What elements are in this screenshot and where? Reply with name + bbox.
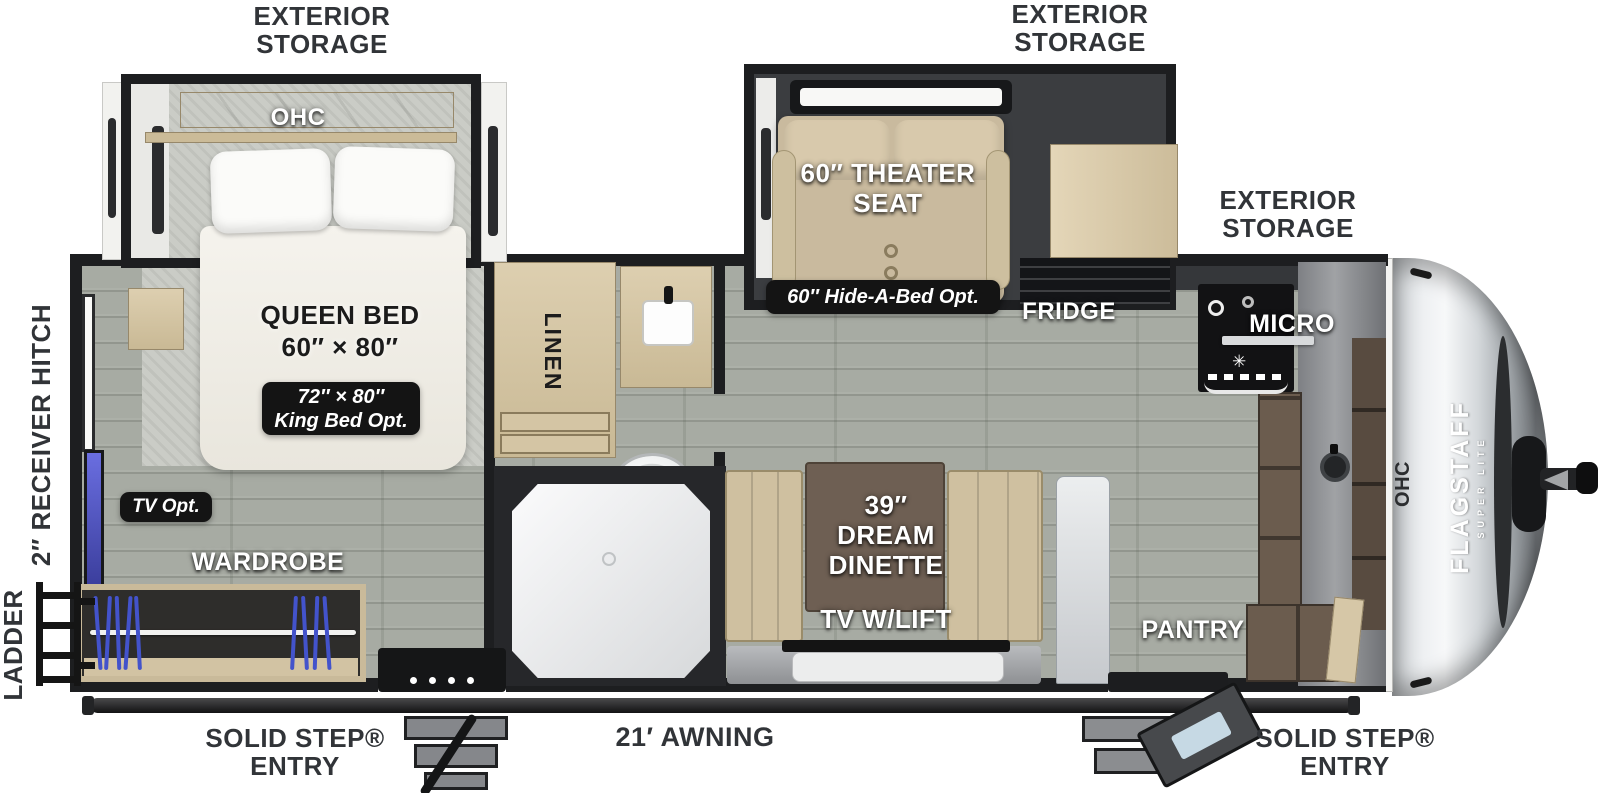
rear-window — [82, 294, 95, 452]
cap-window-band — [1494, 336, 1512, 628]
ext-storage-rear-label: EXTERIOR STORAGE — [197, 2, 447, 58]
king-opt-line1: 72″ × 80″ — [298, 385, 384, 409]
stove-vent-dashes — [1208, 374, 1284, 380]
front-ohc-text: OHC — [1392, 461, 1414, 507]
brand-name: FLAGSTAFF — [1446, 400, 1475, 574]
stove-handle-icon — [1204, 382, 1288, 394]
hide-a-bed-badge: 60″ Hide-A-Bed Opt. — [766, 280, 1000, 314]
ext-storage-front-l2: STORAGE — [1222, 213, 1354, 243]
ext-storage-mid-label: EXTERIOR STORAGE — [955, 0, 1205, 56]
wardrobe-text: WARDROBE — [192, 548, 345, 576]
theater-window-glass — [800, 88, 1002, 106]
entry-left-l1: SOLID STEP® — [205, 723, 384, 753]
dinette-label: 39″ DREAM DINETTE — [786, 490, 986, 580]
snowflake-glyph: ✳ — [1232, 352, 1246, 371]
queen-bed-line2: 60″ × 80″ — [282, 332, 399, 362]
entry-left-mat — [378, 648, 506, 692]
ext-storage-mid-l1: EXTERIOR — [1012, 0, 1149, 29]
king-bed-option-badge: 72″ × 80″ King Bed Opt. — [262, 382, 420, 435]
entry-steps-left — [396, 714, 536, 793]
theater-line2: SEAT — [853, 188, 922, 218]
hangers-icon-left — [96, 596, 156, 670]
stove-burner2-icon — [1242, 296, 1254, 308]
hide-a-bed-text: 60″ Hide-A-Bed Opt. — [787, 285, 979, 309]
entry-right-label: SOLID STEP® ENTRY — [1245, 724, 1445, 780]
hangers-icon-right — [292, 596, 340, 670]
brand-sub: SUPER LITE — [1476, 436, 1486, 539]
pantry-cabinet — [1056, 476, 1110, 684]
kitchen-cabinet-column — [1258, 392, 1302, 608]
linen-drawer-2 — [500, 434, 610, 454]
nightstand — [128, 288, 184, 350]
dinette-line1: 39″ — [865, 490, 908, 520]
tv-lift-console — [792, 652, 1004, 682]
rv-floorplan: FLAGSTAFF SUPER LITE OHC OHC QUEEN BED 6… — [0, 0, 1600, 793]
bed-slide-window-right — [488, 126, 498, 236]
pillow-right — [333, 146, 456, 232]
pillow-left — [210, 148, 333, 234]
hitch-handle — [1576, 462, 1598, 494]
ladder-text: LADDER — [0, 589, 28, 700]
queen-bed-line1: QUEEN BED — [260, 300, 419, 330]
king-opt-line2: King Bed Opt. — [274, 409, 407, 433]
awning-end-cap-right — [1348, 696, 1360, 715]
dinette-line2: DREAM — [837, 520, 935, 550]
shower-pan — [512, 484, 710, 678]
tv-lift-label: TV W/LIFT — [786, 604, 986, 635]
ext-storage-front-l1: EXTERIOR — [1220, 185, 1357, 215]
receiver-hitch-label: 2″ RECEIVER HITCH — [27, 270, 57, 600]
entry-left-label: SOLID STEP® ENTRY — [195, 724, 395, 780]
theater-line1: 60″ THEATER — [801, 158, 976, 188]
ext-storage-mid-l2: STORAGE — [1014, 27, 1146, 57]
awning-bar — [90, 698, 1354, 713]
bedroom-headboard-shelf — [145, 132, 457, 143]
rear-tv — [84, 450, 104, 592]
ext-storage-front-label: EXTERIOR STORAGE — [1163, 186, 1413, 242]
fridge-label: FRIDGE — [1014, 298, 1124, 326]
receiver-hitch-text: 2″ RECEIVER HITCH — [26, 304, 56, 566]
pantry-label: PANTRY — [1128, 616, 1258, 645]
stove-snowflake-icon: ✳ — [1232, 352, 1246, 372]
ext-storage-rear-l1: EXTERIOR — [254, 1, 391, 31]
bedroom-ohc-text: OHC — [271, 104, 326, 131]
entry-right-l2: ENTRY — [1300, 751, 1390, 781]
tv-lift-tv — [782, 640, 1010, 652]
bath-faucet-icon — [664, 286, 673, 304]
stove-burner-icon — [1208, 300, 1224, 316]
tv-lift-text: TV W/LIFT — [820, 604, 952, 634]
ladder-label: LADDER — [0, 560, 29, 730]
theater-side-cabinet — [1050, 144, 1178, 258]
pantry-text: PANTRY — [1142, 616, 1245, 644]
entry-left-l2: ENTRY — [250, 751, 340, 781]
entry-right-mat — [1108, 672, 1228, 692]
fridge-text: FRIDGE — [1022, 298, 1116, 325]
kitchen-cabinet-capside — [1352, 338, 1386, 630]
wall-bath-right-top — [714, 254, 725, 394]
kitchen-faucet-icon — [1330, 444, 1338, 454]
entry-right-l1: SOLID STEP® — [1255, 723, 1434, 753]
tv-option-badge: TV Opt. — [120, 492, 212, 522]
awning-end-cap-left — [82, 696, 94, 715]
theater-slide-window-side — [761, 128, 771, 220]
queen-bed-size: 60″ × 80″ — [240, 332, 440, 363]
micro-text: MICRO — [1249, 310, 1335, 338]
shower-drain-icon — [602, 552, 616, 566]
micro-label: MICRO — [1240, 310, 1344, 339]
bath-sink — [642, 300, 694, 346]
ext-storage-rear-l2: STORAGE — [256, 29, 388, 59]
theater-console-cup2 — [884, 266, 898, 280]
theater-seat-label: 60″ THEATER SEAT — [778, 158, 998, 218]
bed-slide-window-left — [108, 118, 116, 218]
dinette-line3: DINETTE — [829, 550, 944, 580]
front-ohc-label: OHC — [1392, 424, 1422, 544]
awning-label: 21′ AWNING — [560, 723, 830, 751]
kitchen-sink — [1320, 452, 1350, 482]
linen-label: LINEN — [538, 272, 566, 432]
tv-opt-text: TV Opt. — [132, 496, 200, 519]
theater-console-cup1 — [884, 244, 898, 258]
awning-text: 21′ AWNING — [616, 722, 775, 752]
bedroom-ohc-label: OHC — [258, 104, 338, 132]
brand-logo: FLAGSTAFF SUPER LITE — [1440, 337, 1492, 637]
wardrobe-label: WARDROBE — [168, 548, 368, 577]
linen-text: LINEN — [540, 313, 566, 392]
queen-bed-label: QUEEN BED — [240, 300, 440, 331]
